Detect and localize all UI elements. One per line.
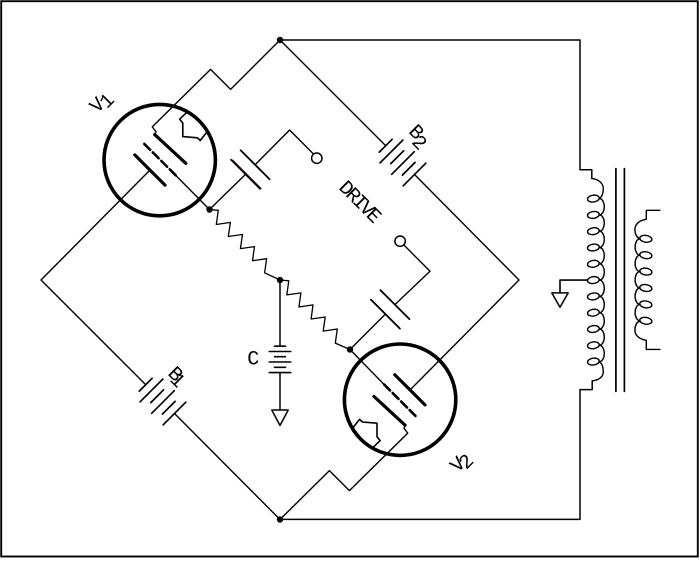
svg-text:C: C bbox=[247, 349, 259, 372]
